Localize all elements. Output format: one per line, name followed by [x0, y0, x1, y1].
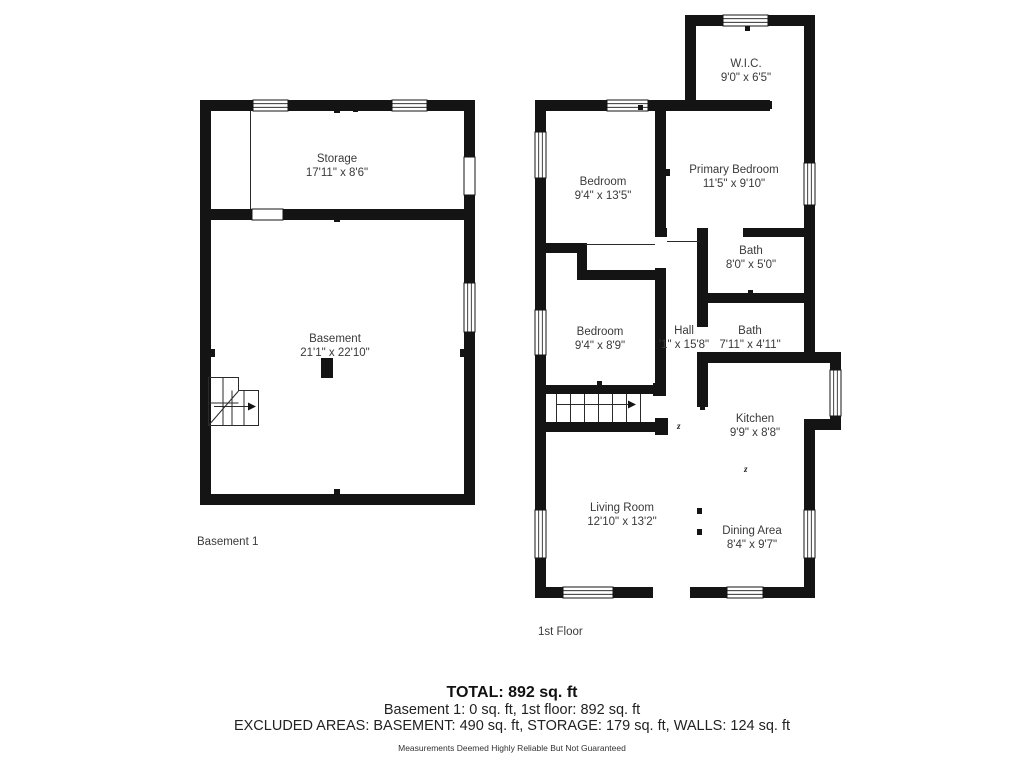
wall-tick	[353, 107, 358, 112]
door-jamb-tick	[649, 589, 653, 596]
room-name: Living Room	[587, 501, 656, 515]
wall-tick	[700, 405, 705, 410]
wall	[655, 100, 666, 235]
window-symbol	[253, 100, 288, 111]
room-label-storage: Storage 17'11" x 8'6"	[306, 152, 368, 180]
door-opening	[252, 209, 283, 220]
room-dims: 9'4" x 13'5"	[575, 189, 632, 203]
room-dims: 9'9" x 8'8"	[730, 426, 780, 440]
wall-tick	[666, 169, 670, 176]
wall	[655, 418, 668, 435]
floor-plan-page: z z Storage 17'11" x 8'6" Basement 21'1"…	[0, 0, 1024, 768]
window-symbol	[723, 15, 768, 26]
wall-tick	[745, 26, 750, 31]
wall	[697, 352, 708, 407]
room-label-bath-1: Bath 8'0" x 5'0"	[726, 244, 776, 272]
room-name: Hall	[659, 324, 709, 338]
room-name: Bath	[726, 244, 776, 258]
room-name: Basement	[300, 332, 369, 346]
wall	[655, 228, 667, 237]
room-label-living-room: Living Room 12'10" x 13'2"	[587, 501, 656, 529]
wall-tick	[697, 529, 702, 535]
room-dims: 12'10" x 13'2"	[587, 515, 656, 529]
room-name: Bedroom	[575, 325, 625, 339]
wall	[200, 100, 211, 505]
opening-mark: z	[743, 464, 748, 474]
wall	[200, 494, 475, 505]
room-label-bath-2: Bath 7'11" x 4'11"	[719, 324, 780, 352]
window-symbol	[563, 587, 613, 598]
wall	[535, 422, 668, 432]
wall	[535, 385, 666, 394]
wall-tick	[334, 216, 340, 222]
wall-tick	[597, 381, 602, 385]
room-label-bedroom-1: Bedroom 9'4" x 13'5"	[575, 175, 632, 203]
basement-plan-caption: Basement 1	[197, 536, 258, 548]
room-dims: 8'0" x 5'0"	[726, 258, 776, 272]
window-symbol	[535, 132, 546, 178]
room-name: Bedroom	[575, 175, 632, 189]
room-name: W.I.C.	[721, 57, 771, 71]
wall	[653, 383, 666, 396]
room-dims: 7'11" x 4'11"	[719, 338, 780, 352]
room-name: Primary Bedroom	[689, 163, 778, 177]
room-name: Bath	[719, 324, 780, 338]
door-opening	[653, 587, 690, 598]
wall-tick	[334, 489, 340, 495]
window-symbol	[392, 100, 427, 111]
wall	[685, 15, 696, 110]
wall-tick	[638, 105, 643, 110]
stairs-symbol	[556, 394, 641, 422]
summary-excluded: EXCLUDED AREAS: BASEMENT: 490 sq. ft, ST…	[0, 718, 1024, 734]
opening-mark: z	[676, 421, 681, 431]
stair-direction-arrow	[248, 403, 256, 411]
first-floor-plan-caption: 1st Floor	[538, 626, 583, 638]
room-label-bedroom-2: Bedroom 9'4" x 8'9"	[575, 325, 625, 353]
summary-floors: Basement 1: 0 sq. ft, 1st floor: 892 sq.…	[0, 702, 1024, 718]
wall	[577, 270, 662, 280]
wall	[743, 228, 815, 237]
room-label-dining-area: Dining Area 8'4" x 9'7"	[722, 524, 781, 552]
room-label-hall: Hall '1" x 15'8"	[659, 324, 709, 352]
room-label-kitchen: Kitchen 9'9" x 8'8"	[730, 412, 780, 440]
wall-tick	[334, 107, 340, 113]
summary-total: TOTAL: 892 sq. ft	[0, 683, 1024, 702]
window-symbol	[804, 163, 815, 205]
room-name: Storage	[306, 152, 368, 166]
summary-disclaimer: Measurements Deemed Highly Reliable But …	[0, 743, 1024, 753]
room-label-primary-bedroom: Primary Bedroom 11'5" x 9'10"	[689, 163, 778, 191]
area-summary: TOTAL: 892 sq. ft Basement 1: 0 sq. ft, …	[0, 683, 1024, 753]
room-dims: 21'1" x 22'10"	[300, 346, 369, 360]
first-floor-plan	[535, 15, 841, 598]
wall	[697, 237, 708, 293]
room-label-wic: W.I.C. 9'0" x 6'5"	[721, 57, 771, 85]
window-symbol	[535, 510, 546, 558]
door-jamb-tick	[768, 101, 772, 109]
room-dims: 11'5" x 9'10"	[689, 177, 778, 191]
wall	[697, 352, 841, 363]
room-dims: 9'4" x 8'9"	[575, 339, 625, 353]
window-symbol	[535, 310, 546, 355]
room-name: Dining Area	[722, 524, 781, 538]
wall	[804, 419, 841, 430]
door-opening	[464, 157, 475, 195]
room-dims: '1" x 15'8"	[659, 338, 709, 352]
window-symbol	[804, 510, 815, 558]
room-label-basement: Basement 21'1" x 22'10"	[300, 332, 369, 360]
floor-plan-graphics: z z	[0, 0, 1024, 768]
wall-tick	[697, 508, 702, 514]
stairs-symbol	[209, 378, 259, 426]
window-symbol	[830, 370, 841, 416]
wall-tick	[748, 290, 753, 296]
wall	[697, 293, 815, 303]
window-symbol	[727, 587, 763, 598]
window-symbol	[464, 283, 475, 332]
room-dims: 17'11" x 8'6"	[306, 166, 368, 180]
support-post	[321, 358, 333, 378]
room-dims: 8'4" x 9'7"	[722, 538, 781, 552]
room-dims: 9'0" x 6'5"	[721, 71, 771, 85]
wall	[697, 228, 708, 237]
wall	[535, 100, 770, 111]
wall-tick	[460, 349, 464, 357]
room-name: Kitchen	[730, 412, 780, 426]
door-jamb-tick	[690, 589, 694, 596]
stair-direction-arrow	[628, 401, 636, 409]
wall-tick	[211, 349, 215, 357]
